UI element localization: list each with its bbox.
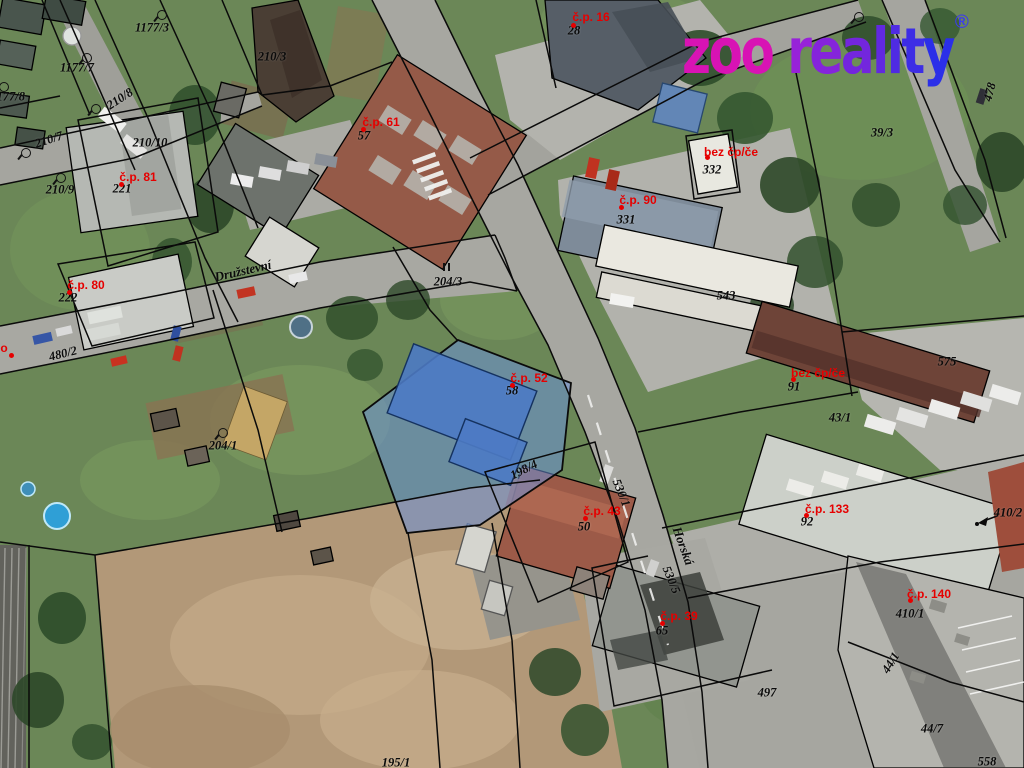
registered-icon: ® <box>955 12 969 34</box>
aerial-backdrop <box>0 0 1024 768</box>
logo: zoo reality ® <box>682 20 953 70</box>
aerial-cadastral-map: 1177/31177/71177/8210/8210/3210/7210/102… <box>0 0 1024 768</box>
logo-zoo: zoo <box>682 15 787 88</box>
logo-reality: reality <box>787 15 953 88</box>
